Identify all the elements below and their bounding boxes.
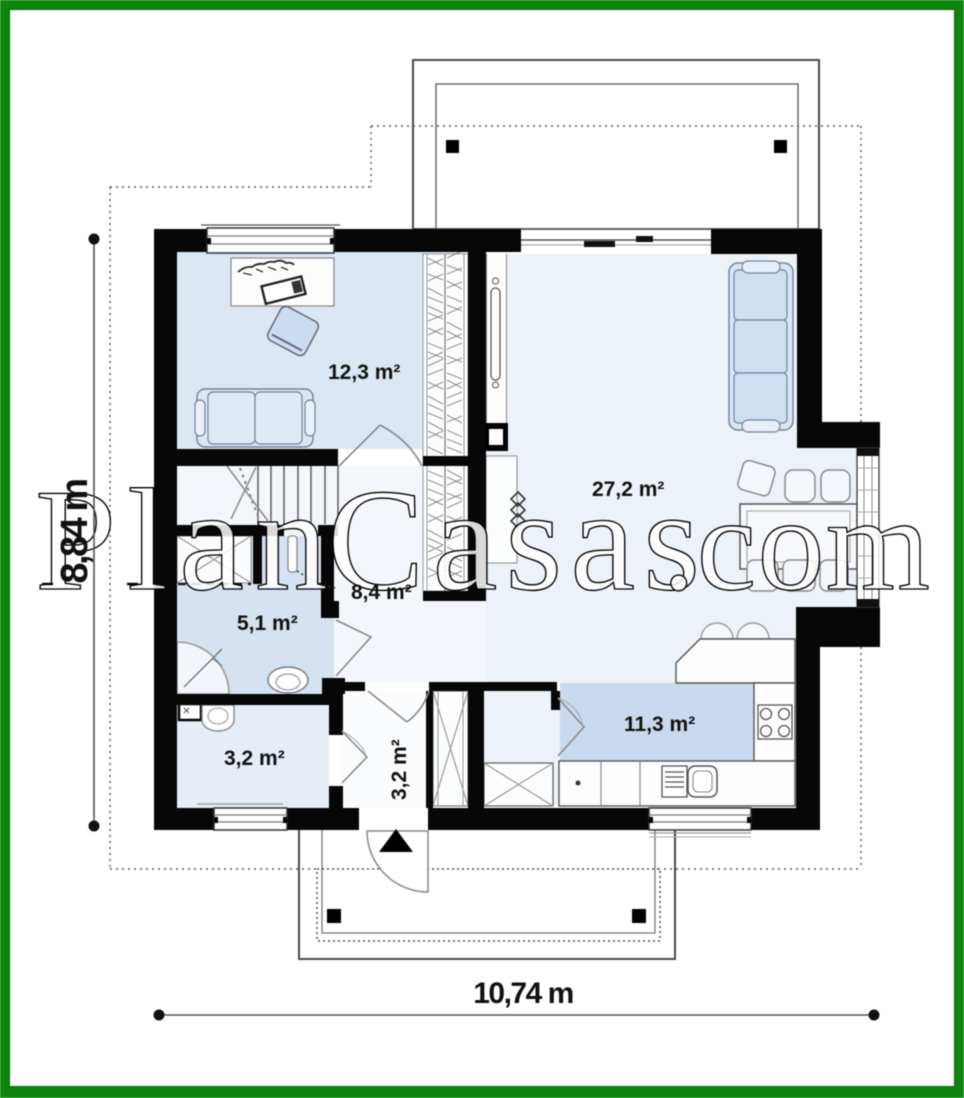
svg-text:3,2 m²: 3,2 m² (224, 747, 285, 770)
svg-text:3,2 m²: 3,2 m² (388, 739, 411, 800)
svg-text:8,4 m²: 8,4 m² (351, 581, 412, 604)
svg-text:8,84 m: 8,84 m (54, 480, 96, 584)
svg-text:11,3 m²: 11,3 m² (624, 713, 695, 736)
svg-text:10,74 m: 10,74 m (473, 977, 573, 1010)
svg-text:12,3 m²: 12,3 m² (328, 361, 400, 384)
svg-text:.com: .com (662, 470, 930, 618)
svg-text:27,2 m²: 27,2 m² (592, 478, 664, 501)
svg-text:5,1 m²: 5,1 m² (237, 612, 298, 635)
